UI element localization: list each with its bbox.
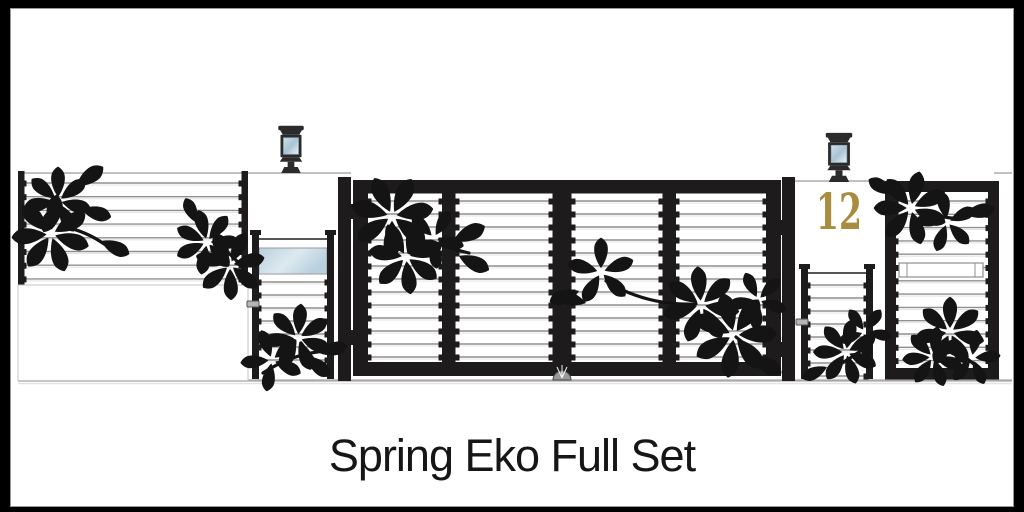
left-fence-post-left (18, 171, 25, 285)
left-wicket-post-right (327, 232, 334, 379)
letterbox-slot (899, 263, 983, 277)
right-pillar-lamp-icon (826, 133, 853, 182)
wall-top-lines (18, 173, 1012, 181)
left-wall-section (18, 285, 248, 381)
house-number: 12 (816, 182, 862, 241)
leaf-motif-right-fence-top (861, 158, 996, 266)
house-number-text: 12 (816, 182, 862, 241)
gate-panel-2-slats (455, 199, 554, 361)
right-wicket-latch (796, 319, 808, 325)
wicket-glass-panel (259, 248, 327, 274)
gate-post-right (782, 177, 795, 381)
product-title: Spring Eko Full Set (11, 430, 1013, 482)
product-image-frame: 12 (0, 0, 1024, 512)
left-pillar-lamp-icon (278, 126, 304, 173)
drawing-area: 12 (10, 8, 1014, 507)
left-wicket-latch (247, 301, 259, 307)
